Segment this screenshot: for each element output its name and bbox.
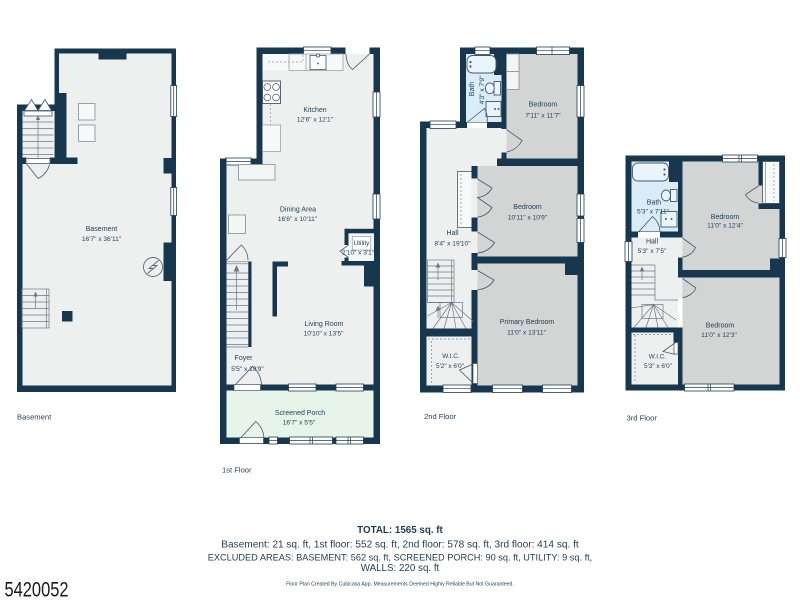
svg-text:WALLS: 220 sq. ft: WALLS: 220 sq. ft xyxy=(361,563,440,574)
svg-text:5420052: 5420052 xyxy=(5,579,69,600)
svg-text:Bedroom: Bedroom xyxy=(706,323,735,330)
svg-text:W.I.C.: W.I.C. xyxy=(442,353,460,360)
svg-text:4'3" x 7'9": 4'3" x 7'9" xyxy=(479,75,486,104)
svg-text:Basement: 21 sq. ft, 1st floor: Basement: 21 sq. ft, 1st floor: 552 sq. … xyxy=(221,540,579,551)
svg-text:Basement: Basement xyxy=(17,413,52,422)
svg-text:Floor Plan Created By Cubicasa: Floor Plan Created By Cubicasa App. Meas… xyxy=(286,582,514,588)
svg-text:2nd Floor: 2nd Floor xyxy=(424,412,457,421)
svg-text:16'7" x 5'5": 16'7" x 5'5" xyxy=(283,420,316,427)
svg-text:Dining Area: Dining Area xyxy=(280,207,316,214)
svg-text:Bedroom: Bedroom xyxy=(711,214,740,221)
svg-text:Basement: Basement xyxy=(86,226,118,233)
svg-text:11'0" x 13'11": 11'0" x 13'11" xyxy=(507,330,547,337)
svg-text:7'11" x 11'7": 7'11" x 11'7" xyxy=(525,113,561,120)
svg-text:11'0" x 12'4": 11'0" x 12'4" xyxy=(707,223,743,230)
svg-text:Screened Porch: Screened Porch xyxy=(275,410,325,417)
svg-text:5'5" x 19'9": 5'5" x 19'9" xyxy=(231,366,264,373)
svg-text:10'11" x 10'9": 10'11" x 10'9" xyxy=(508,215,548,222)
svg-text:Primary Bedroom: Primary Bedroom xyxy=(500,319,555,326)
svg-text:Bedroom: Bedroom xyxy=(513,204,542,211)
svg-text:16'7" x 36'11": 16'7" x 36'11" xyxy=(82,236,122,243)
svg-text:Utility: Utility xyxy=(354,240,371,247)
svg-text:Bedroom: Bedroom xyxy=(529,102,558,109)
svg-text:Bath: Bath xyxy=(469,82,476,97)
svg-text:2'10" x 3'1": 2'10" x 3'1" xyxy=(342,250,375,257)
svg-text:1st Floor: 1st Floor xyxy=(222,466,252,475)
svg-text:5'3" x 6'0": 5'3" x 6'0" xyxy=(644,363,672,370)
svg-text:W.I.C.: W.I.C. xyxy=(649,354,667,361)
svg-text:Kitchen: Kitchen xyxy=(303,107,326,114)
svg-text:Hall: Hall xyxy=(646,239,659,246)
svg-text:Foyer: Foyer xyxy=(235,355,254,362)
svg-text:8'4" x 19'10": 8'4" x 19'10" xyxy=(434,241,471,248)
svg-text:5'3" x 7'5": 5'3" x 7'5" xyxy=(638,248,667,255)
svg-text:Living Room: Living Room xyxy=(305,321,344,328)
svg-text:Hall: Hall xyxy=(446,230,459,237)
svg-text:16'6" x 10'11": 16'6" x 10'11" xyxy=(278,216,318,223)
svg-text:5'2" x 6'0": 5'2" x 6'0" xyxy=(436,363,464,370)
svg-text:EXCLUDED AREAS: BASEMENT: 562: EXCLUDED AREAS: BASEMENT: 562 sq. ft, SC… xyxy=(208,553,592,563)
svg-text:5'3" x 7'11": 5'3" x 7'11" xyxy=(637,209,670,216)
svg-text:11'0" x 12'3": 11'0" x 12'3" xyxy=(701,332,737,339)
svg-text:Bath: Bath xyxy=(647,200,662,207)
svg-text:12'6" x 12'1": 12'6" x 12'1" xyxy=(297,117,334,124)
svg-text:TOTAL: 1565 sq. ft: TOTAL: 1565 sq. ft xyxy=(357,525,443,536)
svg-text:3rd Floor: 3rd Floor xyxy=(627,414,658,423)
svg-text:10'10" x 13'5": 10'10" x 13'5" xyxy=(304,331,344,338)
